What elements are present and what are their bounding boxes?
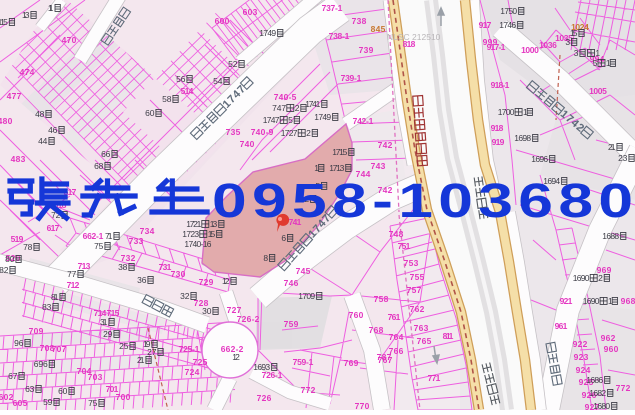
svg-text:924: 924 <box>576 365 591 375</box>
svg-text:38: 38 <box>118 262 128 272</box>
svg-text:78: 78 <box>23 242 33 252</box>
svg-text:480: 480 <box>0 116 13 126</box>
svg-text:917: 917 <box>479 20 492 30</box>
svg-text:1688: 1688 <box>602 231 619 241</box>
svg-text:1682: 1682 <box>589 388 606 398</box>
svg-text:1721: 1721 <box>186 219 201 229</box>
svg-text:1700: 1700 <box>498 107 515 117</box>
svg-text:742: 742 <box>378 140 393 150</box>
svg-text:1746: 1746 <box>499 20 516 30</box>
svg-text:918-1: 918-1 <box>491 80 510 90</box>
svg-text:80: 80 <box>5 254 15 264</box>
svg-text:713: 713 <box>78 261 91 271</box>
svg-text:1: 1 <box>595 48 600 58</box>
svg-text:54: 54 <box>213 76 223 86</box>
svg-text:1698: 1698 <box>514 133 531 143</box>
svg-text:1723: 1723 <box>182 229 199 239</box>
svg-text:71: 71 <box>105 231 113 241</box>
svg-text:726-2: 726-2 <box>237 314 260 324</box>
svg-text:962: 962 <box>601 333 616 343</box>
svg-text:999: 999 <box>483 37 498 47</box>
svg-text:818: 818 <box>403 39 416 49</box>
svg-text:761: 761 <box>388 312 401 322</box>
svg-text:1747: 1747 <box>263 115 280 125</box>
svg-text:712: 712 <box>67 280 80 290</box>
svg-text:75: 75 <box>88 398 98 408</box>
svg-text:760: 760 <box>349 310 364 320</box>
svg-text:758: 758 <box>374 294 389 304</box>
svg-text:1750: 1750 <box>500 6 517 16</box>
svg-text:52: 52 <box>228 59 238 69</box>
svg-text:771: 771 <box>428 373 441 383</box>
svg-text:921: 921 <box>560 296 573 306</box>
svg-text:12: 12 <box>222 276 230 286</box>
svg-text:15: 15 <box>208 229 216 239</box>
svg-text:1690: 1690 <box>583 296 600 306</box>
svg-text:960: 960 <box>604 344 619 354</box>
svg-text:5: 5 <box>288 115 293 125</box>
svg-text:58: 58 <box>162 94 172 104</box>
svg-text:740: 740 <box>240 139 255 149</box>
svg-text:21: 21 <box>137 355 145 365</box>
svg-text:115: 115 <box>0 17 8 27</box>
svg-text:1715: 1715 <box>332 147 347 157</box>
svg-text:730: 730 <box>171 269 186 279</box>
svg-text:23: 23 <box>618 153 628 163</box>
svg-text:470: 470 <box>62 35 77 45</box>
svg-text:30: 30 <box>202 306 212 316</box>
svg-text:46: 46 <box>48 125 58 135</box>
svg-text:68: 68 <box>94 161 104 171</box>
svg-text:772: 772 <box>301 385 316 395</box>
svg-text:63: 63 <box>25 384 35 394</box>
svg-text:483: 483 <box>11 154 26 164</box>
svg-text:739-1: 739-1 <box>341 73 362 83</box>
svg-text:724: 724 <box>185 367 200 377</box>
svg-text:759: 759 <box>284 319 299 329</box>
svg-text:753: 753 <box>404 258 419 268</box>
svg-text:770: 770 <box>355 401 370 410</box>
svg-text:740-5: 740-5 <box>274 92 297 102</box>
svg-text:3: 3 <box>565 37 570 47</box>
svg-text:703: 703 <box>88 372 103 382</box>
svg-text:31: 31 <box>100 317 108 327</box>
svg-text:477: 477 <box>7 91 22 101</box>
svg-text:2: 2 <box>598 273 603 283</box>
svg-text:21: 21 <box>608 142 616 152</box>
svg-text:514: 514 <box>181 86 194 96</box>
svg-text:1709: 1709 <box>298 291 315 301</box>
svg-text:519: 519 <box>11 234 24 244</box>
svg-text:755: 755 <box>410 272 425 282</box>
svg-text:726: 726 <box>257 393 272 403</box>
svg-text:1740-16: 1740-16 <box>184 239 211 249</box>
svg-text:1749: 1749 <box>314 112 331 122</box>
svg-text:1000: 1000 <box>521 45 539 55</box>
svg-text:715: 715 <box>107 308 120 318</box>
svg-text:968: 968 <box>621 296 635 306</box>
svg-text:1680: 1680 <box>593 401 610 410</box>
svg-text:44: 44 <box>38 136 48 146</box>
svg-text:48: 48 <box>35 109 45 119</box>
svg-text:707: 707 <box>52 344 67 354</box>
svg-text:75: 75 <box>94 241 104 251</box>
svg-text:0958-103680: 0958-103680 <box>212 174 635 227</box>
svg-text:60: 60 <box>145 108 155 118</box>
svg-text:734: 734 <box>140 226 155 236</box>
svg-text:757: 757 <box>407 285 422 295</box>
svg-text:617: 617 <box>47 223 60 233</box>
svg-text:738: 738 <box>352 16 367 26</box>
svg-text:725: 725 <box>193 357 208 367</box>
svg-text:1696: 1696 <box>531 154 548 164</box>
svg-text:6: 6 <box>281 233 286 243</box>
svg-text:1690: 1690 <box>573 273 590 283</box>
svg-text:32: 32 <box>180 291 190 301</box>
svg-text:751: 751 <box>398 241 411 251</box>
svg-text:919: 919 <box>492 137 505 147</box>
svg-text:763: 763 <box>414 323 429 333</box>
svg-text:13: 13 <box>22 10 30 20</box>
svg-text:12: 12 <box>232 352 240 362</box>
svg-text:762: 762 <box>410 304 425 314</box>
svg-text:767: 767 <box>378 355 393 365</box>
svg-text:1686: 1686 <box>586 375 603 385</box>
svg-text:19: 19 <box>143 339 151 349</box>
svg-text:3: 3 <box>574 48 579 58</box>
svg-text:737-1: 737-1 <box>322 3 343 13</box>
svg-text:15: 15 <box>570 28 578 38</box>
svg-text:743: 743 <box>371 161 386 171</box>
svg-text:740-9: 740-9 <box>251 127 274 137</box>
svg-text:922: 922 <box>573 339 588 349</box>
svg-text:729: 729 <box>199 277 214 287</box>
svg-text:81: 81 <box>51 292 59 302</box>
svg-text:748: 748 <box>389 229 404 239</box>
svg-text:8: 8 <box>263 253 268 263</box>
svg-text:600: 600 <box>215 16 230 26</box>
svg-text:769: 769 <box>344 358 359 368</box>
svg-text:764: 764 <box>389 332 404 342</box>
svg-text:2: 2 <box>295 103 300 113</box>
svg-text:768: 768 <box>369 325 384 335</box>
svg-text:82: 82 <box>0 265 9 275</box>
svg-text:811: 811 <box>443 331 454 341</box>
svg-text:918: 918 <box>491 123 504 133</box>
svg-text:742-1: 742-1 <box>353 116 374 126</box>
svg-text:1693: 1693 <box>253 362 270 372</box>
svg-text:2: 2 <box>306 128 311 138</box>
svg-text:772: 772 <box>616 383 631 393</box>
svg-text:765: 765 <box>417 336 432 346</box>
svg-text:759-1: 759-1 <box>293 357 314 367</box>
svg-text:1713: 1713 <box>329 163 344 173</box>
svg-text:738-1: 738-1 <box>329 31 350 41</box>
svg-text:747: 747 <box>272 103 286 113</box>
svg-text:696: 696 <box>34 359 48 369</box>
svg-text:961: 961 <box>555 321 568 331</box>
svg-text:923: 923 <box>574 352 589 362</box>
svg-text:746: 746 <box>284 278 299 288</box>
svg-text:5: 5 <box>593 58 598 68</box>
svg-text:83: 83 <box>42 302 52 312</box>
svg-text:733: 733 <box>129 236 144 246</box>
svg-text:67: 67 <box>8 371 18 381</box>
svg-text:739: 739 <box>359 45 374 55</box>
svg-text:56: 56 <box>176 74 186 84</box>
svg-text:59: 59 <box>43 397 53 407</box>
svg-text:709: 709 <box>29 326 44 336</box>
svg-text:66: 66 <box>101 149 111 159</box>
svg-text:735: 735 <box>226 127 241 137</box>
svg-text:725-1: 725-1 <box>179 344 200 354</box>
svg-text:474: 474 <box>20 67 35 77</box>
svg-text:11: 11 <box>48 3 54 13</box>
svg-text:1727: 1727 <box>281 128 298 138</box>
svg-text:603: 603 <box>243 7 258 17</box>
svg-text:662-1: 662-1 <box>83 231 104 241</box>
svg-text:1741: 1741 <box>305 99 320 109</box>
svg-text:1005: 1005 <box>589 86 607 96</box>
svg-text:700: 700 <box>116 392 131 402</box>
svg-text:605: 605 <box>13 398 28 408</box>
svg-text:1749: 1749 <box>259 28 276 38</box>
svg-text:29: 29 <box>103 329 113 339</box>
svg-text:745: 745 <box>296 266 311 276</box>
svg-text:36: 36 <box>137 275 147 285</box>
svg-text:845: 845 <box>371 24 386 34</box>
svg-text:25: 25 <box>119 341 129 351</box>
svg-text:60: 60 <box>58 386 68 396</box>
svg-text:96: 96 <box>14 338 24 348</box>
svg-text:77: 77 <box>67 269 77 279</box>
